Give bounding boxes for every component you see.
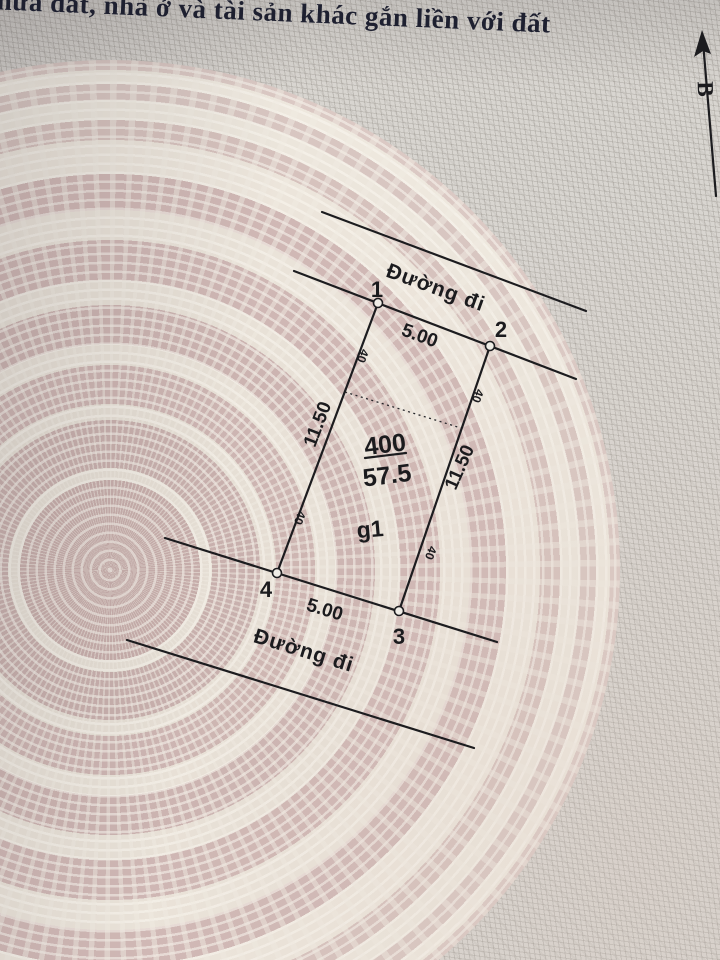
certificate-photo: thửa đất, nhà ở và tài sản khác gắn liền… [0, 0, 720, 960]
parcel-diagram: B 1 2 3 4 5.00 5.00 11.50 11.50 400 57.5… [0, 0, 720, 960]
road-label-bottom: Đường đi [251, 625, 357, 677]
corner-label-2: 2 [495, 317, 507, 342]
north-arrow-icon [694, 30, 716, 196]
dimension-label-bottom: 5.00 [304, 595, 346, 626]
corner-marker-2 [486, 342, 495, 351]
dimension-label-left: 11.50 [300, 399, 336, 450]
dimension-label-right: 11.50 [441, 442, 479, 493]
corner-marker-3 [395, 607, 404, 616]
corner-label-3: 3 [393, 624, 405, 649]
corner-marker-4 [273, 569, 282, 578]
corner-label-4: 4 [260, 577, 273, 602]
setback-dotted-line [345, 392, 461, 428]
corner-label-1: 1 [371, 277, 383, 302]
edge-mark-bottom-right: 40 [422, 544, 440, 562]
zone-label: g1 [356, 515, 385, 543]
road-bottom-inner-edge-line [165, 538, 497, 642]
edge-mark-bottom-left: 40 [291, 509, 309, 527]
north-label: B [693, 81, 719, 97]
parcel-area: 57.5 [361, 459, 413, 493]
